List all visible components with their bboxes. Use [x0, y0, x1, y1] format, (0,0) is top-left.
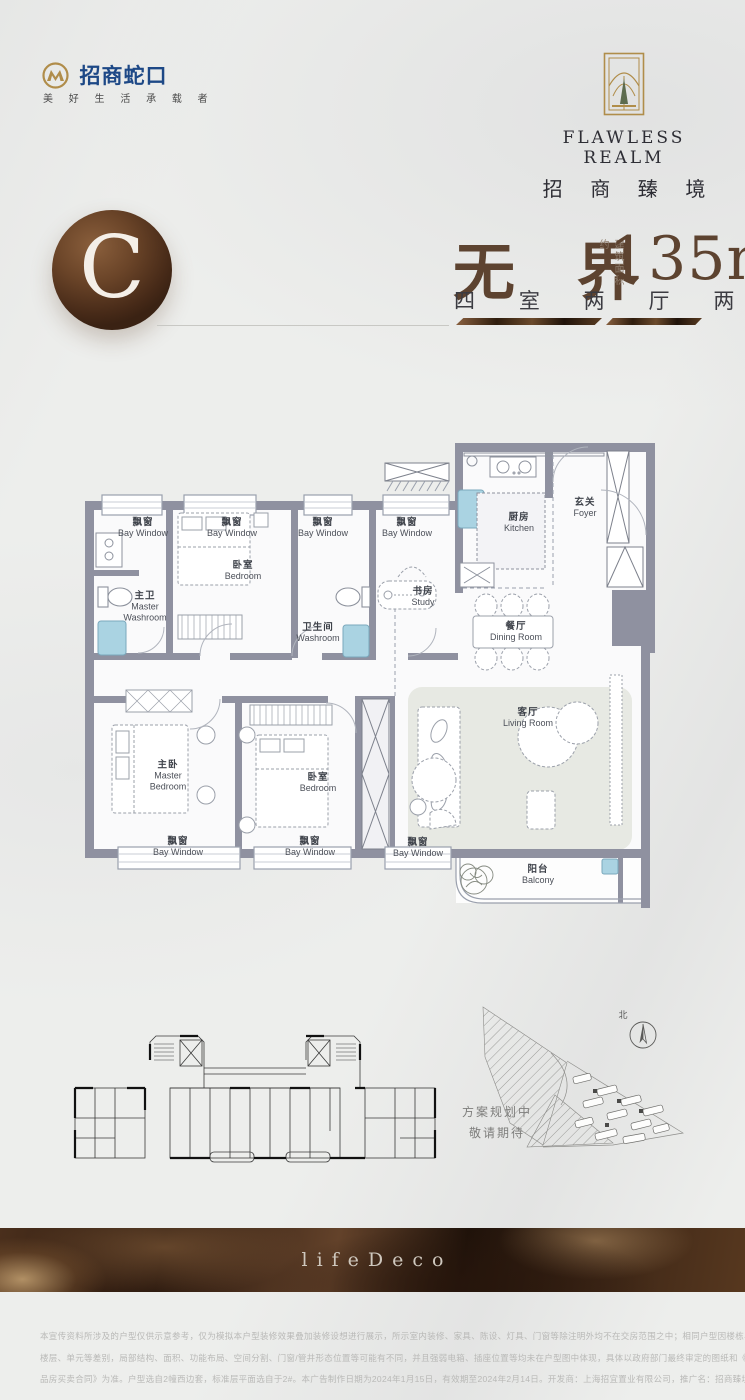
room-label-bedroom-2: 卧室Bedroom: [281, 772, 355, 794]
footer-band: lifeDeco: [0, 1228, 745, 1292]
brand-tagline: 美 好 生 活 承 载 者: [43, 90, 214, 105]
unit-area-number: 135m: [609, 224, 745, 294]
brand-logo-icon: [42, 62, 69, 89]
brand-logo-text: 招商蛇口: [79, 60, 167, 90]
room-label-bay-window-6: 飘窗Bay Window: [273, 836, 347, 858]
unit-type-letter: C: [79, 225, 145, 311]
room-label-master-bedroom: 主卧Master Bedroom: [136, 760, 200, 793]
disclaimer-line-3: 品房买卖合同》为准。户型选自2幢西边套，标准层平面选自于2#。本广告制作日期为2…: [40, 1369, 710, 1391]
room-label-balcony: 阳台Balcony: [501, 864, 575, 886]
room-label-master-washroom: 主卫Master Washroom: [113, 591, 177, 624]
room-label-living-room: 客厅Living Room: [491, 707, 565, 729]
unit-layout: 四 室 两 厅 两 卫: [454, 285, 745, 315]
room-label-kitchen: 厨房Kitchen: [482, 512, 556, 534]
disclaimer: 本宣传资料所涉及的户型仅供示意参考，仅为模拟本户型装修效果叠加装修设想进行展示，…: [40, 1326, 710, 1391]
room-label-bay-window-1: 飘窗Bay Window: [106, 517, 180, 539]
project-name-zh: 招 商 臻 境: [518, 173, 730, 202]
room-label-bay-window-5: 飘窗Bay Window: [141, 836, 215, 858]
project-emblem-icon: [603, 52, 645, 116]
unit-type-badge: C: [52, 210, 172, 330]
divider-line: [157, 325, 449, 326]
project-logo: FLAWLESS REALM 招 商 臻 境: [518, 52, 730, 202]
building-keyplan-svg: [70, 1030, 440, 1165]
siteplan-note-line2: 敬请期待: [437, 1123, 557, 1144]
room-label-study: 书房Study: [386, 586, 460, 608]
room-label-bay-window-4: 飘窗Bay Window: [370, 517, 444, 539]
siteplan-note: 方案规划中 敬请期待: [437, 1102, 557, 1144]
brand-logo: 招商蛇口: [42, 60, 167, 90]
room-label-bay-window-7: 飘窗Bay Window: [381, 837, 455, 859]
room-label-bay-window-3: 飘窗Bay Window: [286, 517, 360, 539]
room-label-dining-room: 餐厅Dining Room: [479, 621, 553, 643]
disclaimer-line-1: 本宣传资料所涉及的户型仅供示意参考，仅为模拟本户型装修效果叠加装修设想进行展示，…: [40, 1326, 710, 1348]
unit-area-value: 135m2: [609, 224, 745, 294]
poster-page: 招商蛇口 美 好 生 活 承 载 者 FLAWLESS REALM 招 商 臻 …: [0, 0, 745, 1400]
accent-bar-right: [606, 318, 702, 325]
north-label: 北: [612, 1008, 634, 1021]
room-label-bay-window-2: 飘窗Bay Window: [195, 517, 269, 539]
siteplan-note-line1: 方案规划中: [437, 1102, 557, 1123]
disclaimer-line-2: 楼层、单元等差别，局部结构、面积、功能布局、空间分割、门窗/管井形态位置等可能有…: [40, 1348, 710, 1370]
room-label-washroom: 卫生间Washroom: [281, 622, 355, 644]
project-name-en: FLAWLESS REALM: [518, 128, 730, 168]
room-label-foyer: 玄关Foyer: [548, 497, 622, 519]
room-label-bedroom-top: 卧室Bedroom: [206, 560, 280, 582]
footer-band-text: lifeDeco: [293, 1249, 453, 1271]
accent-bar-left: [456, 318, 602, 325]
